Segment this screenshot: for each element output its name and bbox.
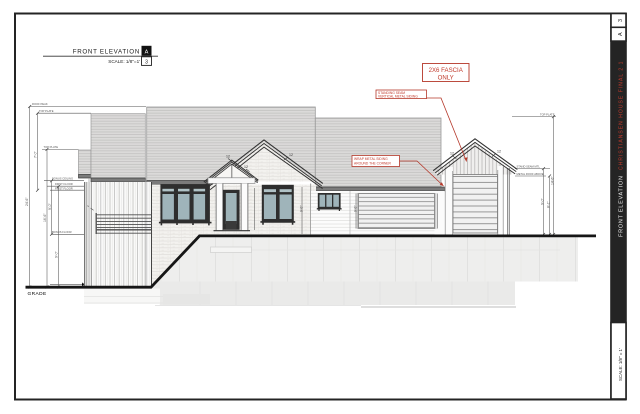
svg-text:AROUND THE CORNER: AROUND THE CORNER xyxy=(354,162,392,166)
svg-text:9'-0": 9'-0" xyxy=(48,202,52,210)
svg-text:3: 3 xyxy=(618,19,624,22)
svg-text:CHRISTIANSEN HOUSE FINAL 2 1: CHRISTIANSEN HOUSE FINAL 2 1 xyxy=(619,60,625,170)
svg-text:ROOF PEAK: ROOF PEAK xyxy=(32,102,48,106)
svg-text:SCALE: 1/8"=1': SCALE: 1/8"=1' xyxy=(108,59,140,64)
svg-text:BONUS CEILING: BONUS CEILING xyxy=(52,177,73,181)
svg-text:2X6 FASCIA: 2X6 FASCIA xyxy=(429,67,464,74)
svg-text:12: 12 xyxy=(244,165,248,169)
svg-text:12: 12 xyxy=(450,152,454,156)
svg-text:A: A xyxy=(618,32,624,36)
svg-text:7'-0": 7'-0" xyxy=(34,150,38,158)
svg-text:9'-0": 9'-0" xyxy=(354,206,358,212)
svg-text:BONUS FLOOR: BONUS FLOOR xyxy=(52,230,72,234)
svg-text:12: 12 xyxy=(289,153,293,157)
svg-text:FIRST FLOOR: FIRST FLOOR xyxy=(55,186,73,190)
svg-text:FRONT ELEVATION: FRONT ELEVATION xyxy=(73,48,140,55)
svg-text:16'-6": 16'-6" xyxy=(43,213,47,222)
svg-text:9'-0": 9'-0" xyxy=(541,197,545,205)
svg-text:9'-0": 9'-0" xyxy=(55,250,59,258)
svg-text:GRADE: GRADE xyxy=(28,291,47,297)
svg-text:ONLY: ONLY xyxy=(438,74,454,81)
svg-text:STAND SEAM MTL: STAND SEAM MTL xyxy=(517,165,541,169)
svg-text:3: 3 xyxy=(145,59,148,65)
svg-text:TOP PLATE: TOP PLATE xyxy=(39,109,54,113)
svg-text:12: 12 xyxy=(497,150,501,154)
svg-text:VERTICAL METAL SIDING: VERTICAL METAL SIDING xyxy=(378,95,418,99)
svg-text:SCALE: 1/8" = 1': SCALE: 1/8" = 1' xyxy=(618,348,623,381)
svg-text:A: A xyxy=(145,50,149,56)
svg-text:METAL ROOF ABOVE: METAL ROOF ABOVE xyxy=(517,172,544,176)
svg-text:9'-0": 9'-0" xyxy=(299,206,303,212)
svg-text:FIRST FLOOR: FIRST FLOOR xyxy=(55,182,73,186)
svg-text:24'-6": 24'-6" xyxy=(25,197,29,206)
svg-text:14'-6": 14'-6" xyxy=(551,176,555,185)
svg-text:TOP PLATE: TOP PLATE xyxy=(540,112,555,116)
svg-text:TOP PLATE: TOP PLATE xyxy=(44,145,59,149)
svg-text:8'-1": 8'-1" xyxy=(547,200,551,208)
svg-text:12: 12 xyxy=(226,155,230,159)
svg-text:FRONT ELEVATION: FRONT ELEVATION xyxy=(619,175,625,237)
svg-text:WRAP METAL SIDING: WRAP METAL SIDING xyxy=(354,157,388,161)
